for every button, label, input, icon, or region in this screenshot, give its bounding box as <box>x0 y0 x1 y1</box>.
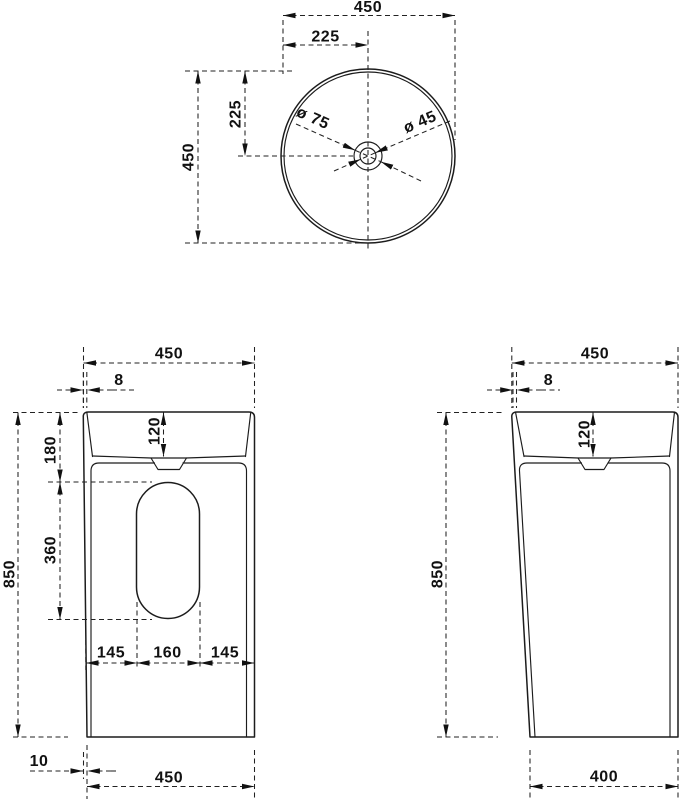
front-drain-recess <box>151 458 187 470</box>
side-bottom-depth-label: 400 <box>590 769 618 786</box>
front-bowl-wall-left <box>87 412 93 457</box>
side-rim-label: 8 <box>544 372 553 389</box>
front-chain-160-label: 160 <box>153 645 181 662</box>
drain-outer-diameter-label: ø 75 <box>294 104 332 133</box>
washbasin-technical-drawing-page: 450 225 450 225 ø 75 ø 45 <box>0 0 682 800</box>
front-bowl-wall-right <box>246 412 251 457</box>
front-bottom-width-label: 450 <box>155 770 183 787</box>
drain-75-leader-lower <box>381 162 421 181</box>
front-height-label: 850 <box>2 560 19 588</box>
front-rim-label: 8 <box>114 372 123 389</box>
washbasin-technical-drawing: 450 225 450 225 ø 75 ø 45 <box>0 0 682 800</box>
top-half-depth-label: 225 <box>228 100 245 128</box>
front-view: 450 8 120 180 360 850 145 160 145 10 450 <box>2 346 255 800</box>
top-depth-label: 450 <box>181 143 198 171</box>
side-view: 450 8 120 850 400 <box>430 346 679 800</box>
front-rim-to-cutout-label: 180 <box>43 436 60 464</box>
side-height-label: 850 <box>430 560 447 588</box>
front-chain-145-right-label: 145 <box>211 645 239 662</box>
front-width-label: 450 <box>155 346 183 363</box>
front-base-inset-label: 10 <box>30 753 49 770</box>
drain-inner-diameter-label: ø 45 <box>401 108 439 137</box>
side-inner-contour-left <box>519 463 581 737</box>
top-half-width-label: 225 <box>311 29 339 46</box>
side-body-outline <box>512 412 678 737</box>
front-chain-145-left-label: 145 <box>97 645 125 662</box>
side-bowl-wall-left <box>516 412 525 457</box>
front-inner-contour-left <box>91 463 155 737</box>
top-width-label: 450 <box>354 0 382 16</box>
side-basin-floor-line <box>524 456 670 458</box>
side-width-label: 450 <box>581 346 609 363</box>
side-drain-recess <box>578 458 611 470</box>
side-inner-contour-right <box>608 463 670 737</box>
front-basin-depth-label: 120 <box>147 417 164 445</box>
front-basin-floor-line <box>93 456 246 458</box>
front-inner-contour-right <box>183 463 247 737</box>
front-service-cutout <box>137 483 200 619</box>
side-basin-depth-label: 120 <box>577 420 594 448</box>
front-cutout-height-label: 360 <box>43 536 60 564</box>
top-view: 450 225 450 225 ø 75 ø 45 <box>181 0 456 250</box>
side-bowl-wall-right <box>670 412 675 457</box>
front-body-outline <box>83 412 254 737</box>
